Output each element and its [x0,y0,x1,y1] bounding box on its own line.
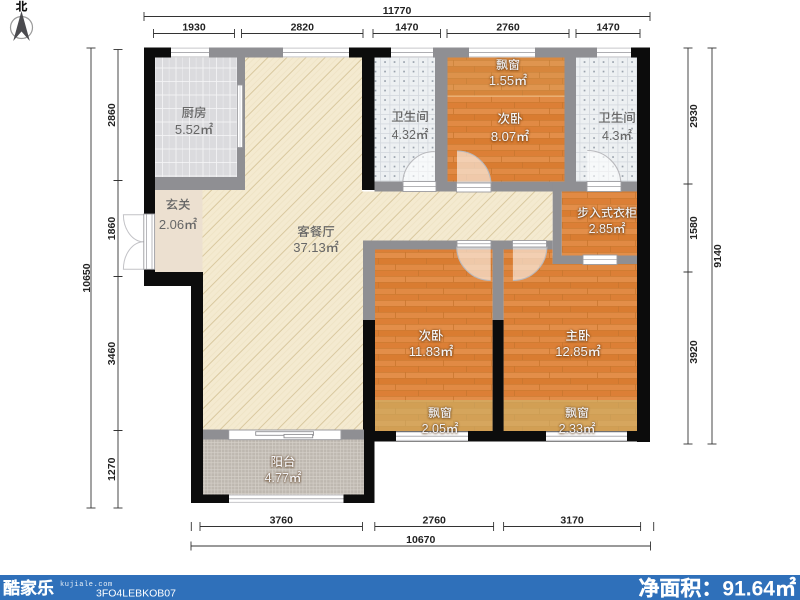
svg-text:主卧: 主卧 [565,329,591,343]
svg-text:2.85㎡: 2.85㎡ [589,222,626,236]
svg-text:卫生间: 卫生间 [598,111,636,125]
svg-text:2760: 2760 [496,22,520,34]
svg-text:次卧: 次卧 [418,329,444,343]
svg-text:1470: 1470 [596,22,620,34]
svg-text:2860: 2860 [106,103,118,127]
svg-text:12.85㎡: 12.85㎡ [555,344,601,359]
svg-text:2820: 2820 [291,22,315,34]
svg-text:10650: 10650 [81,263,93,292]
svg-text:酷家乐: 酷家乐 [3,579,54,598]
svg-text:北: 北 [16,1,28,14]
svg-text:2.06㎡: 2.06㎡ [159,217,197,232]
svg-text:3920: 3920 [688,340,700,364]
svg-text:飘窗: 飘窗 [428,406,452,420]
svg-text:2760: 2760 [423,515,447,527]
svg-text:飘窗: 飘窗 [496,58,520,72]
svg-text:5.52㎡: 5.52㎡ [175,122,213,137]
svg-text:4.3㎡: 4.3㎡ [602,129,632,143]
svg-text:1270: 1270 [106,457,118,481]
svg-text:1.55㎡: 1.55㎡ [489,73,527,88]
svg-text:2.33㎡: 2.33㎡ [559,422,596,436]
svg-text:卫生间: 卫生间 [391,110,429,124]
svg-text:1470: 1470 [395,22,419,34]
svg-text:厨房: 厨房 [181,106,206,120]
svg-text:3760: 3760 [270,515,294,527]
svg-text:3FO4LEBKOB07: 3FO4LEBKOB07 [96,588,176,600]
svg-text:客餐厅: 客餐厅 [297,225,335,239]
svg-text:9140: 9140 [712,244,724,268]
svg-text:8.07㎡: 8.07㎡ [491,129,529,144]
svg-text:1580: 1580 [688,216,700,240]
svg-text:步入式衣柜: 步入式衣柜 [577,206,637,220]
svg-text:阳台: 阳台 [270,455,295,469]
svg-text:10670: 10670 [406,534,435,546]
svg-text:飘窗: 飘窗 [565,406,589,420]
svg-text:37.13㎡: 37.13㎡ [293,240,339,255]
svg-text:3460: 3460 [106,342,118,366]
svg-text:次卧: 次卧 [497,112,523,126]
svg-text:1860: 1860 [106,217,118,241]
svg-text:2.05㎡: 2.05㎡ [422,422,459,436]
svg-text:1930: 1930 [182,22,206,34]
svg-text:11770: 11770 [383,5,412,17]
svg-text:4.32㎡: 4.32㎡ [392,128,429,142]
svg-text:玄关: 玄关 [165,198,191,212]
svg-text:4.77㎡: 4.77㎡ [265,471,302,485]
svg-text:净面积：91.64㎡: 净面积：91.64㎡ [638,577,796,600]
svg-text:3170: 3170 [560,515,584,527]
svg-text:2930: 2930 [688,104,700,128]
svg-text:11.83㎡: 11.83㎡ [409,344,454,359]
